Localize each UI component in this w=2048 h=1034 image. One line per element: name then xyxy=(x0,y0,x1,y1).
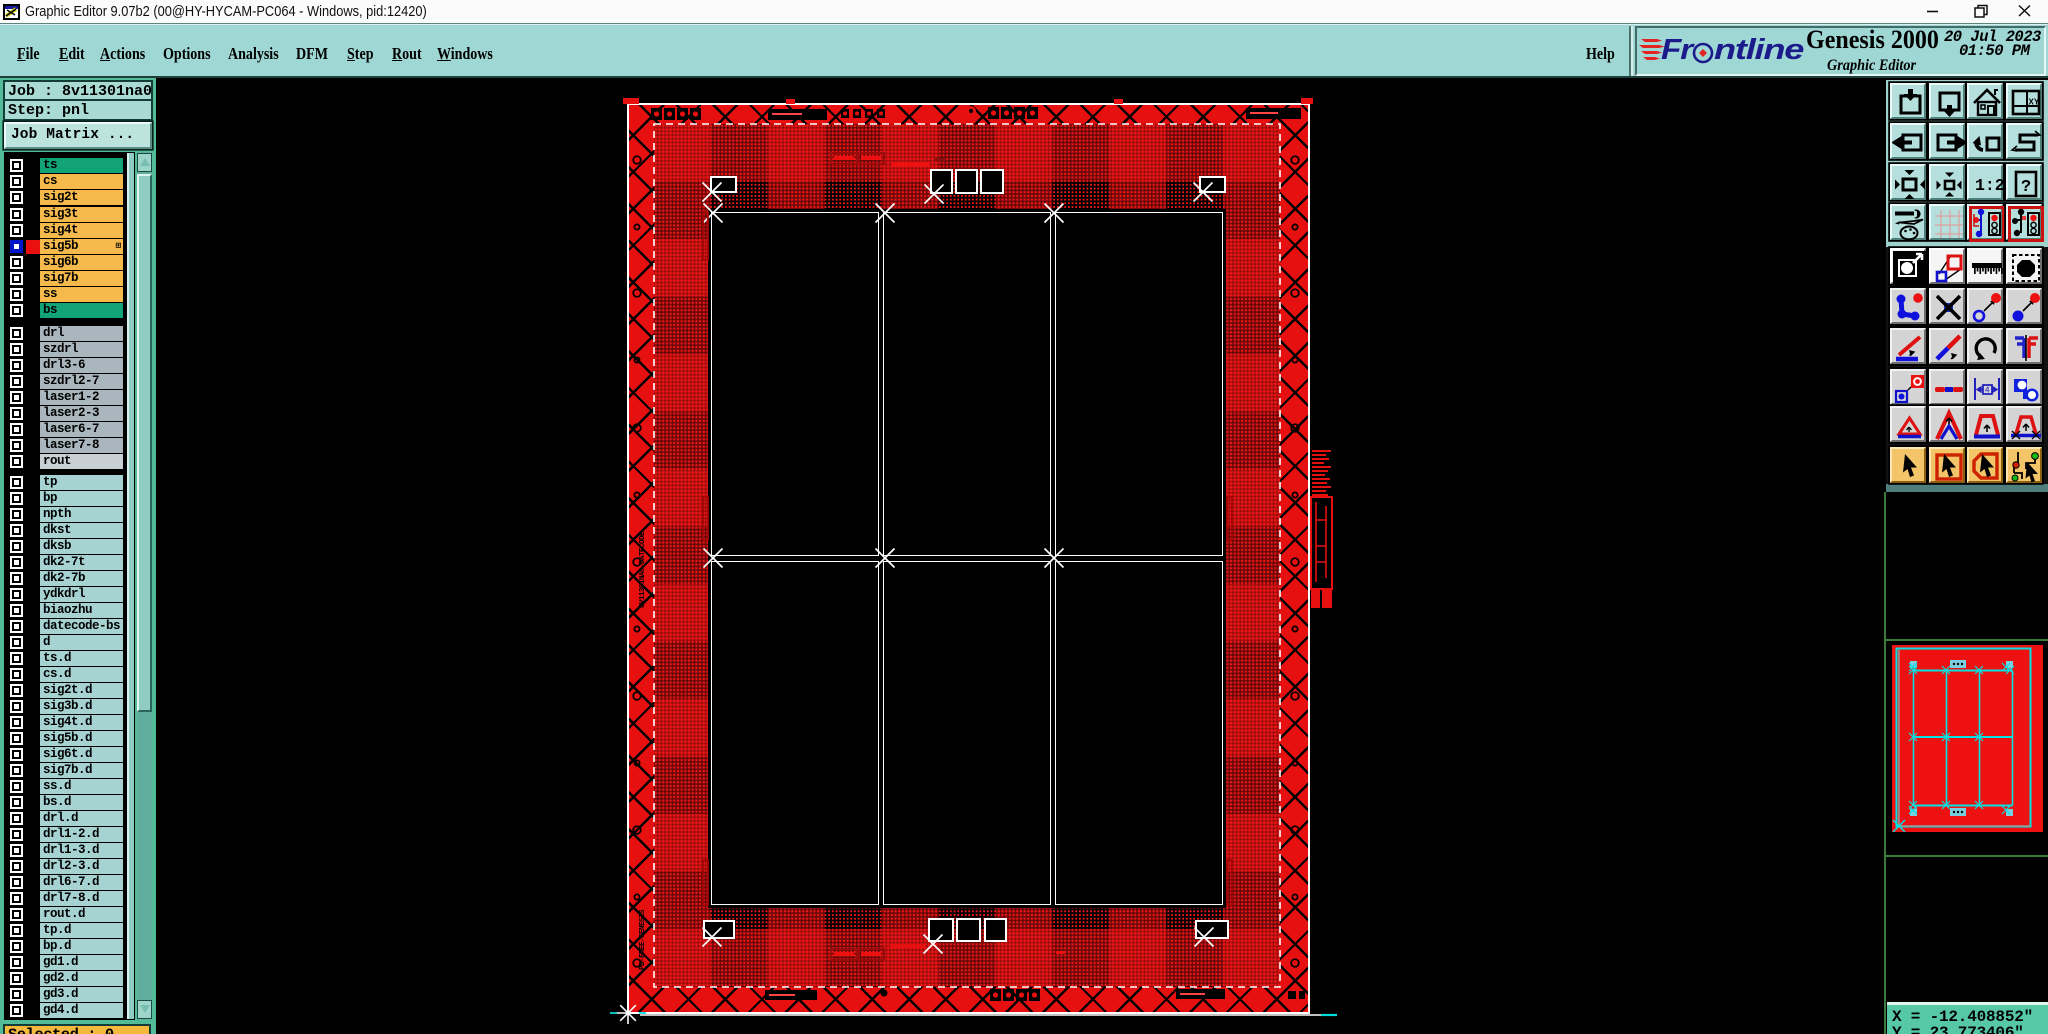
svg-text:8V11301NA0-DATECODE: 8V11301NA0-DATECODE xyxy=(639,531,647,608)
svg-text:?: ? xyxy=(2021,178,2031,197)
svg-text:1:2: 1:2 xyxy=(1975,176,2005,195)
svg-text:PB-FREE-GENESIS: PB-FREE-GENESIS xyxy=(639,909,647,970)
svg-text:4: 4 xyxy=(1985,385,1990,394)
svg-text:XY: XY xyxy=(2028,98,2039,107)
